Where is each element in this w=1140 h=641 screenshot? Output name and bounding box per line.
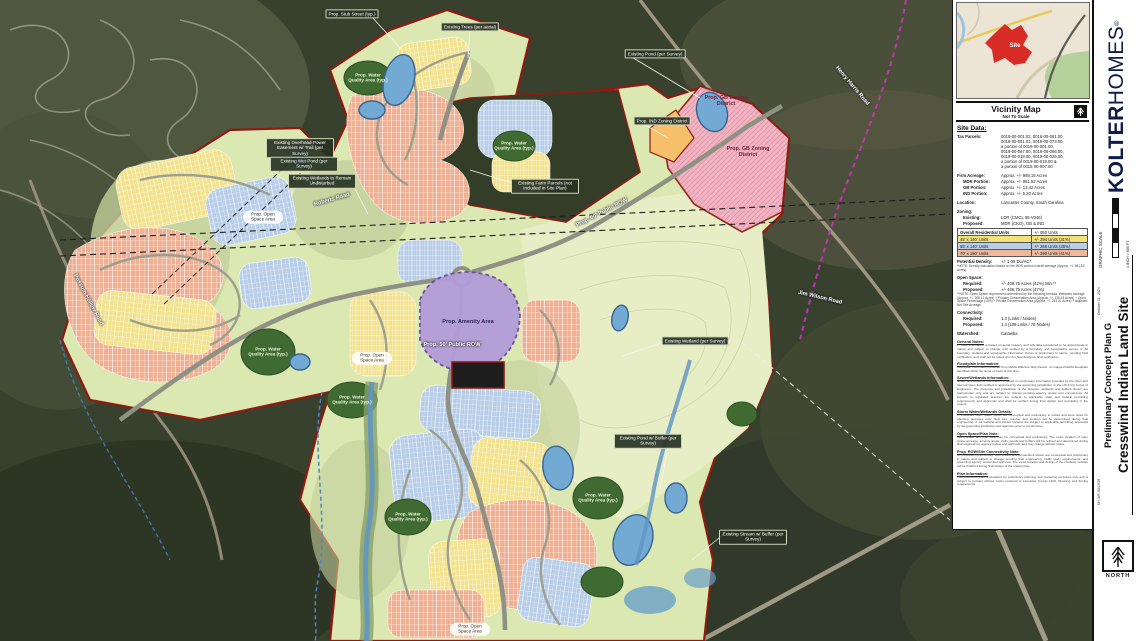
units-table: Overall Residential Units+/- 950 Units45… — [957, 228, 1088, 257]
open-space-required: +/- 406.75 Acres (42%) Min.** — [1001, 281, 1088, 286]
site-data-row: Firm Acreage:Approx. +/- 969.15 Acres — [957, 173, 1088, 178]
sheet-title: Preliminary Concept Plan G — [1103, 255, 1114, 515]
site-data-row: Existing:LDR (CMCL 98-V045) — [957, 215, 1088, 220]
plan-note: Storm Water/Wetlands Details:1. Proposed… — [957, 410, 1088, 429]
plan-notes: General Notes:1. Base information is bas… — [957, 340, 1088, 487]
site-data-rows: Tax Parcels:0019-00-001.02, 0016-00-061.… — [957, 134, 1088, 226]
kolter-homes-logo: KOLTERHOMES® — [1094, 6, 1140, 206]
title-strip: KOLTERHOMES® GRAPHIC SCALE 1 INCH = 600 … — [1092, 0, 1140, 641]
vicinity-header: Vicinity Map Not To Scale — [956, 101, 1089, 122]
connectivity-proposed: 1.4 (109 Links / 78 Nodes) — [1001, 322, 1088, 327]
site-data-panel: Site Vicinity Map Not To Scale Site Data… — [952, 0, 1092, 530]
site-data-row: GB Portion:Approx. +/- 13.42 Acres — [957, 185, 1088, 190]
connectivity-label: Connectivity: — [957, 310, 1001, 315]
north-word: NORTH — [1101, 573, 1135, 579]
existing-building — [452, 362, 504, 388]
map-canvas — [0, 0, 1092, 641]
plan-date: October 31, 2024 — [1097, 255, 1101, 315]
units-table-row: 55' x 140' Units+/- 266 Units (28%) — [958, 243, 1088, 250]
north-tree-icon — [1102, 540, 1134, 572]
vicinity-map: Site — [956, 2, 1090, 99]
units-table-row: 70' x 150' Units+/- 390 Units (41%) — [958, 250, 1088, 257]
project-titles: Cresswind Indian Land Site Preliminary C… — [1096, 255, 1140, 515]
connectivity-required: 1.3 (Links / Nodes) — [1001, 316, 1088, 321]
plan-note: Plan Information:This illustrative plan … — [957, 472, 1088, 488]
watershed-value: Catawba — [1001, 331, 1088, 336]
north-logo: NORTH — [1101, 540, 1135, 579]
units-table-header: Overall Residential Units+/- 950 Units — [958, 229, 1088, 236]
concept-plan-map: Prop. Stub Street (typ.)Existing Trees (… — [0, 0, 1092, 641]
plan-note: Floodplain Information:Floodplain inform… — [957, 362, 1088, 374]
vicinity-site-label: Site — [1009, 43, 1021, 49]
site-data-row: Tax Parcels:0019-00-001.02, 0016-00-061.… — [957, 134, 1088, 169]
site-data-row: Location:Lancaster County, South Carolin… — [957, 200, 1088, 205]
north-arrow-icon — [1074, 105, 1087, 118]
plan-note: Sewer/Wetlands Information:Sewer and wet… — [957, 376, 1088, 407]
site-data-row: Proposed:MDR (CKO), GB & IND — [957, 221, 1088, 226]
site-data-section: Site Data: Tax Parcels:0019-00-001.02, 0… — [953, 122, 1092, 487]
project-title: Cresswind Indian Land Site — [1116, 255, 1133, 515]
site-data-title: Site Data: — [957, 125, 1088, 132]
site-data-row: MDR Portion:Approx. +/- 951.52 Acres — [957, 179, 1088, 184]
plan-note: Prop. ROW/Site Connectivity Note:All pro… — [957, 450, 1088, 469]
open-space-note: **NOTE: Open Space requirement determine… — [957, 293, 1088, 308]
vicinity-subtitle: Not To Scale — [958, 114, 1074, 119]
watershed-label: Watershed: — [957, 331, 1001, 336]
plan-note: General Notes:1. Base information is bas… — [957, 340, 1088, 359]
plan-sheet: Prop. Stub Street (typ.)Existing Trees (… — [0, 0, 1140, 641]
vicinity-title: Vicinity Map — [958, 104, 1074, 114]
open-space-proposed: +/- 466.75 Acres (47%) — [1001, 287, 1088, 292]
units-table-row: 45' x 140' Units+/- 294 Units (31%) — [958, 236, 1088, 243]
project-number: KH-WF-004-019 — [1097, 285, 1101, 505]
site-data-row: Zoning: — [957, 209, 1088, 214]
scale-bar — [1112, 198, 1119, 258]
site-data-row: IND Portion:Approx. +/- 5.20 Acres — [957, 191, 1088, 196]
open-space-label: Open Space: — [957, 275, 1001, 280]
plan-note: Open Space/Plan Note:Open space and plan… — [957, 432, 1088, 448]
density-note: *NOTE: Density calculation based on the … — [957, 265, 1088, 273]
